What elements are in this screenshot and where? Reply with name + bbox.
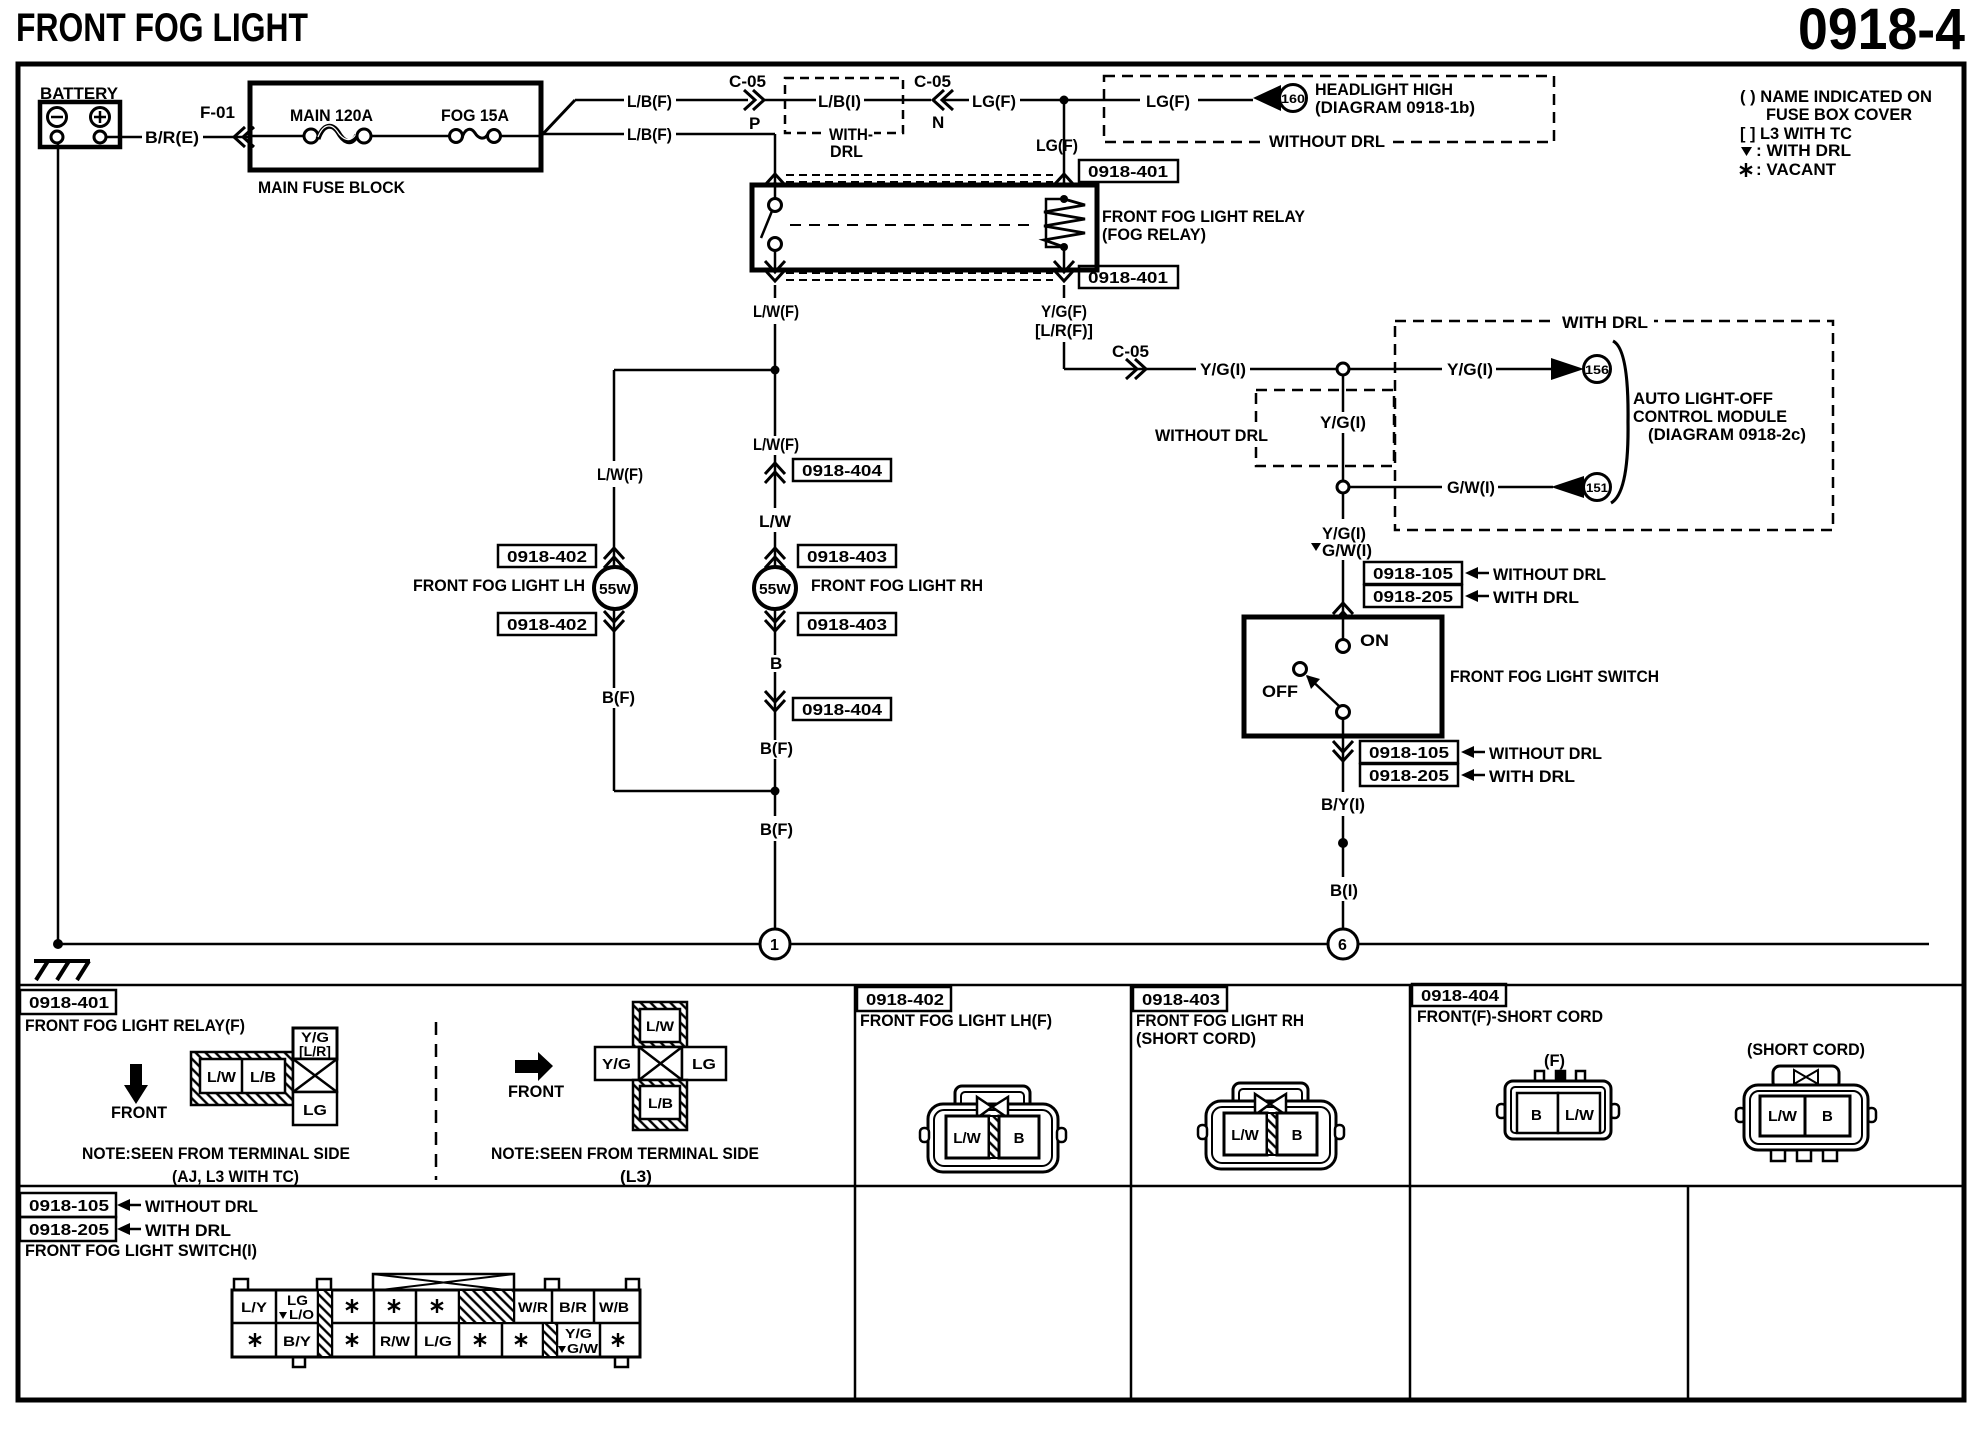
svg-text:B/Y: B/Y (283, 1333, 312, 1349)
svg-text:[L/R(F)]: [L/R(F)] (1035, 321, 1093, 340)
svg-text:6: 6 (1338, 937, 1347, 954)
svg-text:Y/G: Y/G (301, 1030, 329, 1045)
svg-text:: WITH DRL: : WITH DRL (1756, 141, 1851, 160)
svg-text:C-05: C-05 (729, 72, 766, 91)
svg-text:FRONT FOG LIGHT SWITCH(I): FRONT FOG LIGHT SWITCH(I) (25, 1241, 257, 1260)
svg-text:0918-403: 0918-403 (807, 617, 887, 634)
svg-text:FRONT FOG LIGHT RELAY: FRONT FOG LIGHT RELAY (1102, 207, 1306, 226)
svg-text:151: 151 (1586, 481, 1608, 495)
svg-text:: VACANT: : VACANT (1756, 160, 1837, 179)
svg-text:0918-205: 0918-205 (29, 1222, 109, 1239)
svg-text:0918-401: 0918-401 (1088, 164, 1168, 181)
svg-text:WITHOUT DRL: WITHOUT DRL (145, 1197, 258, 1216)
svg-text:(SHORT CORD): (SHORT CORD) (1136, 1029, 1256, 1048)
svg-text:NOTE:SEEN FROM TERMINAL SIDE: NOTE:SEEN FROM TERMINAL SIDE (491, 1144, 759, 1163)
svg-text:0918-404: 0918-404 (1421, 988, 1499, 1005)
svg-text:HEADLIGHT HIGH: HEADLIGHT HIGH (1315, 80, 1453, 99)
svg-text:LG(F): LG(F) (1036, 136, 1078, 155)
svg-text:L/W: L/W (759, 512, 792, 531)
svg-text:0918-402: 0918-402 (866, 992, 944, 1009)
svg-text:1: 1 (770, 937, 779, 954)
svg-text:B/R: B/R (559, 1299, 587, 1315)
svg-text:FRONT FOG LIGHT RH: FRONT FOG LIGHT RH (811, 576, 983, 595)
svg-text:L/W(F): L/W(F) (753, 302, 799, 321)
svg-text:F-01: F-01 (200, 103, 235, 122)
svg-text:FUSE BOX COVER: FUSE BOX COVER (1766, 105, 1912, 124)
svg-text:W/B: W/B (599, 1299, 629, 1315)
svg-text:(F): (F) (1544, 1051, 1565, 1070)
svg-text:L/W: L/W (646, 1018, 675, 1034)
svg-text:C-05: C-05 (1112, 342, 1149, 361)
svg-text:LG(F): LG(F) (972, 92, 1016, 111)
svg-text:0918-402: 0918-402 (507, 617, 587, 634)
svg-text:N: N (932, 113, 944, 132)
svg-text:L/B(I): L/B(I) (818, 92, 861, 111)
svg-text:FRONT: FRONT (508, 1082, 565, 1101)
svg-text:WITH DRL: WITH DRL (1489, 767, 1575, 786)
svg-text:0918-205: 0918-205 (1369, 768, 1449, 785)
svg-text:160: 160 (1281, 92, 1305, 106)
svg-text:LG(F): LG(F) (1146, 92, 1190, 111)
svg-text:L/B(F): L/B(F) (627, 125, 672, 144)
svg-text:G/W: G/W (567, 1341, 599, 1356)
svg-text:WITH DRL: WITH DRL (145, 1221, 231, 1240)
svg-text:55W: 55W (599, 581, 632, 598)
svg-text:FRONT FOG LIGHT LH(F): FRONT FOG LIGHT LH(F) (860, 1011, 1052, 1030)
svg-text:LG: LG (692, 1056, 716, 1073)
svg-text:DRL: DRL (830, 142, 863, 161)
svg-text:B(I): B(I) (1330, 881, 1358, 900)
svg-text:Y/G(F): Y/G(F) (1041, 302, 1087, 321)
svg-text:0918-404: 0918-404 (802, 463, 882, 480)
svg-text:P: P (749, 114, 760, 133)
svg-text:NOTE:SEEN FROM TERMINAL SIDE: NOTE:SEEN FROM TERMINAL SIDE (82, 1144, 350, 1163)
svg-text:B/R(E): B/R(E) (145, 128, 199, 147)
svg-text:55W: 55W (759, 581, 792, 598)
svg-text:G/W(I): G/W(I) (1447, 478, 1495, 497)
svg-text:L/B: L/B (648, 1095, 673, 1111)
svg-text:WITH DRL: WITH DRL (1493, 588, 1579, 607)
svg-text:L/Y: L/Y (241, 1299, 268, 1315)
svg-text:Y/G: Y/G (565, 1326, 592, 1341)
svg-text:R/W: R/W (380, 1333, 411, 1349)
svg-text:FRONT FOG LIGHT: FRONT FOG LIGHT (16, 6, 308, 50)
svg-text:B(F): B(F) (760, 739, 793, 758)
svg-text:AUTO LIGHT-OFF: AUTO LIGHT-OFF (1633, 389, 1773, 408)
svg-text:L/W: L/W (207, 1069, 237, 1086)
svg-text:B(F): B(F) (602, 688, 635, 707)
svg-text:0918-404: 0918-404 (802, 702, 882, 719)
svg-text:Y/G(I): Y/G(I) (1447, 360, 1493, 379)
svg-text:G/W(I): G/W(I) (1322, 541, 1372, 560)
svg-text:(SHORT CORD): (SHORT CORD) (1747, 1040, 1865, 1059)
svg-text:0918-403: 0918-403 (807, 549, 887, 566)
svg-text:FRONT FOG LIGHT RH: FRONT FOG LIGHT RH (1136, 1011, 1304, 1030)
svg-text:L/W(F): L/W(F) (597, 465, 643, 484)
svg-text:B/Y(I): B/Y(I) (1321, 795, 1365, 814)
svg-text:L/W: L/W (1565, 1107, 1595, 1124)
svg-text:FOG 15A: FOG 15A (441, 106, 509, 125)
svg-text:LG: LG (303, 1102, 327, 1119)
svg-text:W/R: W/R (518, 1299, 548, 1315)
svg-text:(DIAGRAM 0918-1b): (DIAGRAM 0918-1b) (1315, 98, 1475, 117)
svg-text:OFF: OFF (1262, 682, 1298, 701)
svg-text:L/W: L/W (1768, 1108, 1798, 1125)
svg-text:(DIAGRAM 0918-2c): (DIAGRAM 0918-2c) (1648, 425, 1806, 444)
svg-text:FRONT FOG LIGHT SWITCH: FRONT FOG LIGHT SWITCH (1450, 667, 1659, 686)
svg-text:0918-401: 0918-401 (29, 995, 109, 1012)
svg-text:FRONT: FRONT (111, 1103, 168, 1122)
svg-text:WITHOUT DRL: WITHOUT DRL (1155, 426, 1268, 445)
svg-text:L/O: L/O (289, 1307, 314, 1322)
svg-text:ON: ON (1360, 631, 1389, 650)
svg-text:WITHOUT DRL: WITHOUT DRL (1489, 744, 1602, 763)
svg-text:FRONT FOG LIGHT LH: FRONT FOG LIGHT LH (413, 576, 585, 595)
svg-text:Y/G: Y/G (602, 1056, 631, 1073)
svg-text:WITH DRL: WITH DRL (1562, 313, 1648, 332)
svg-text:( ) NAME INDICATED ON: ( ) NAME INDICATED ON (1740, 87, 1932, 106)
svg-text:[L/R]: [L/R] (299, 1044, 331, 1059)
svg-text:L/G: L/G (424, 1333, 452, 1349)
svg-text:(L3): (L3) (620, 1167, 652, 1186)
svg-text:L/B(F): L/B(F) (627, 92, 672, 111)
svg-text:156: 156 (1585, 363, 1609, 377)
svg-text:B: B (770, 654, 782, 673)
svg-text:0918-105: 0918-105 (1373, 566, 1453, 583)
svg-text:0918-205: 0918-205 (1373, 589, 1453, 606)
svg-text:0918-4: 0918-4 (1798, 0, 1965, 62)
svg-text:WITHOUT DRL: WITHOUT DRL (1493, 565, 1606, 584)
svg-text:WITHOUT DRL: WITHOUT DRL (1269, 132, 1385, 151)
svg-text:0918-402: 0918-402 (507, 549, 587, 566)
svg-text:0918-401: 0918-401 (1088, 270, 1168, 287)
svg-text:FRONT FOG LIGHT RELAY(F): FRONT FOG LIGHT RELAY(F) (25, 1016, 245, 1035)
svg-text:B(F): B(F) (760, 820, 793, 839)
svg-text:CONTROL MODULE: CONTROL MODULE (1633, 407, 1787, 426)
svg-text:L/B: L/B (250, 1069, 276, 1086)
svg-text:B: B (1531, 1107, 1542, 1124)
svg-text:0918-105: 0918-105 (29, 1198, 109, 1215)
svg-text:C-05: C-05 (914, 72, 951, 91)
svg-text:(FOG RELAY): (FOG RELAY) (1102, 225, 1206, 244)
svg-text:L/W(F): L/W(F) (753, 435, 799, 454)
svg-text:(AJ, L3 WITH TC): (AJ, L3 WITH TC) (172, 1167, 299, 1186)
svg-text:Y/G(I): Y/G(I) (1200, 360, 1246, 379)
svg-text:LG: LG (287, 1292, 308, 1308)
svg-text:MAIN FUSE BLOCK: MAIN FUSE BLOCK (258, 178, 406, 197)
svg-text:MAIN 120A: MAIN 120A (290, 106, 373, 125)
svg-text:0918-105: 0918-105 (1369, 745, 1449, 762)
svg-text:Y/G(I): Y/G(I) (1320, 413, 1366, 432)
svg-text:0918-403: 0918-403 (1142, 992, 1220, 1009)
svg-text:FRONT(F)-SHORT CORD: FRONT(F)-SHORT CORD (1417, 1007, 1603, 1026)
svg-text:B: B (1822, 1108, 1833, 1125)
